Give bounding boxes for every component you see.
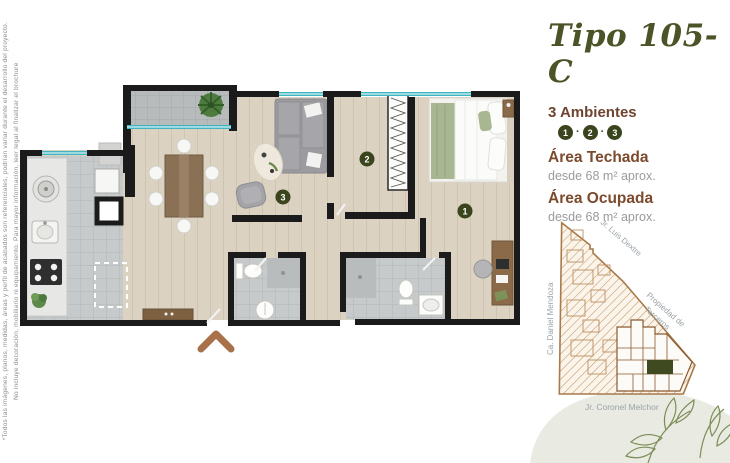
stove-icon bbox=[30, 259, 62, 285]
floor-plan: 1 2 3 bbox=[15, 83, 525, 358]
entrance-arrow-icon bbox=[201, 334, 231, 349]
separator-dot: · bbox=[601, 127, 605, 138]
info-panel: Tipo 105-C 3 Ambientes 1 · 2 · 3 Área Te… bbox=[548, 18, 728, 231]
street-label-bottom: Jr. Coronel Melchor bbox=[585, 402, 659, 412]
ambiente-badge-1: 1 bbox=[558, 125, 573, 140]
ambientes-badges: 1 · 2 · 3 bbox=[558, 125, 728, 140]
marker-2: 2 bbox=[364, 154, 369, 164]
area-techada-label: Área Techada bbox=[548, 149, 728, 167]
area-ocupada-label: Área Ocupada bbox=[548, 190, 728, 208]
column bbox=[97, 199, 121, 223]
unit-location-highlight bbox=[647, 360, 673, 374]
ambiente-badge-2: 2 bbox=[583, 125, 598, 140]
street-label-top: Jr. Luis Dextre bbox=[599, 218, 644, 259]
ambiente-badge-3: 3 bbox=[607, 125, 622, 140]
site-map: Jr. Luis Dextre Ca. Daniel Mendoza Propi… bbox=[543, 210, 730, 422]
ambientes-label: 3 Ambientes bbox=[548, 104, 728, 121]
unit-type-title: Tipo 105-C bbox=[548, 18, 728, 90]
desk-chair bbox=[474, 260, 492, 278]
door-panel bbox=[125, 145, 135, 197]
marker-3: 3 bbox=[280, 192, 285, 202]
brochure-page: *Todos las imágenes, planos, medidas, ár… bbox=[0, 0, 730, 463]
street-label-left: Ca. Daniel Mendoza bbox=[546, 282, 555, 355]
area-techada-value: desde 68 m² aprox. bbox=[548, 169, 728, 183]
building-footprint bbox=[617, 320, 692, 391]
kitchen-cabinet bbox=[95, 169, 119, 193]
bed bbox=[429, 98, 514, 182]
marker-1: 1 bbox=[462, 206, 467, 216]
kitchen-counter bbox=[27, 158, 67, 316]
toilet-icon bbox=[399, 280, 413, 298]
disclaimer-line-1: *Todos las imágenes, planos, medidas, ár… bbox=[0, 7, 11, 457]
balcony-plant-icon bbox=[198, 92, 224, 117]
separator-dot: · bbox=[576, 127, 580, 138]
nightstand bbox=[503, 100, 514, 117]
closet bbox=[388, 95, 408, 190]
sideboard bbox=[143, 309, 193, 320]
